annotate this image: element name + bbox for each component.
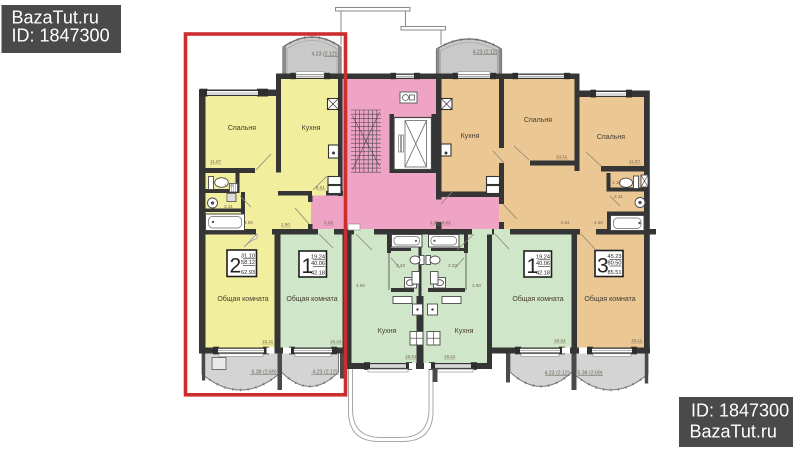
svg-text:ID: 1847300: ID: 1847300	[12, 26, 110, 46]
svg-text:58.12: 58.12	[241, 260, 255, 266]
svg-text:3.33: 3.33	[448, 263, 457, 268]
svg-text:Спальня: Спальня	[228, 125, 256, 132]
svg-text:14.11: 14.11	[556, 154, 568, 159]
svg-text:19.61: 19.61	[444, 354, 456, 359]
svg-text:Спальня: Спальня	[597, 134, 625, 141]
svg-text:5.61: 5.61	[561, 220, 570, 225]
svg-text:Общая комната: Общая комната	[584, 295, 635, 303]
svg-text:4.23 (2.12): 4.23 (2.12)	[544, 371, 569, 377]
svg-text:4.60: 4.60	[356, 283, 365, 288]
svg-text:4.23 (2.12): 4.23 (2.12)	[472, 50, 497, 56]
svg-text:Кухня: Кухня	[455, 328, 474, 335]
svg-text:Кухня: Кухня	[461, 133, 480, 140]
svg-text:Спальня: Спальня	[524, 117, 552, 124]
svg-text:11.97: 11.97	[210, 159, 222, 164]
svg-text:19.24: 19.24	[554, 338, 566, 343]
svg-text:ID: 1847300: ID: 1847300	[691, 401, 789, 421]
svg-text:3.31: 3.31	[224, 204, 233, 209]
svg-text:42.18: 42.18	[536, 271, 550, 277]
svg-text:3.33: 3.33	[396, 263, 405, 268]
svg-text:19.11: 19.11	[631, 338, 643, 343]
svg-text:80.50: 80.50	[608, 261, 622, 267]
svg-text:42.18: 42.18	[311, 271, 325, 277]
svg-text:Общая комната: Общая комната	[512, 295, 563, 303]
svg-text:40.06: 40.06	[311, 261, 325, 267]
svg-text:19.24: 19.24	[330, 339, 342, 344]
svg-text:11.97: 11.97	[629, 159, 641, 164]
svg-text:1.10: 1.10	[224, 183, 233, 188]
svg-text:5.38 (2.69): 5.38 (2.69)	[577, 371, 602, 377]
svg-text:2.90: 2.90	[281, 222, 290, 227]
svg-text:4.23 (2.12): 4.23 (2.12)	[311, 52, 336, 58]
svg-text:2: 2	[230, 255, 242, 278]
svg-text:BazaTut.ru: BazaTut.ru	[12, 8, 99, 28]
svg-text:8.51: 8.51	[316, 185, 325, 190]
svg-text:19.11: 19.11	[262, 339, 274, 344]
svg-text:3.31: 3.31	[614, 194, 623, 199]
svg-text:4.23 (2.12): 4.23 (2.12)	[312, 370, 337, 376]
svg-text:BazaTut.ru: BazaTut.ru	[690, 422, 777, 442]
svg-text:Общая комната: Общая комната	[286, 295, 337, 303]
svg-text:Кухня: Кухня	[302, 125, 321, 132]
svg-text:2.25: 2.25	[324, 220, 333, 225]
svg-text:40.06: 40.06	[536, 261, 550, 267]
svg-text:4.60: 4.60	[594, 220, 603, 225]
svg-text:85.51: 85.51	[608, 270, 622, 276]
svg-text:Кухня: Кухня	[378, 328, 397, 335]
svg-text:4.98+4.63: 4.98+4.63	[430, 220, 451, 225]
svg-text:19.61: 19.61	[405, 354, 417, 359]
svg-text:4.60: 4.60	[244, 220, 253, 225]
svg-text:5.38 (2.69): 5.38 (2.69)	[251, 370, 276, 376]
svg-text:Общая комната: Общая комната	[217, 295, 268, 303]
svg-text:62.93: 62.93	[241, 270, 255, 276]
svg-text:4.60: 4.60	[472, 283, 481, 288]
svg-text:1.10: 1.10	[612, 180, 621, 185]
